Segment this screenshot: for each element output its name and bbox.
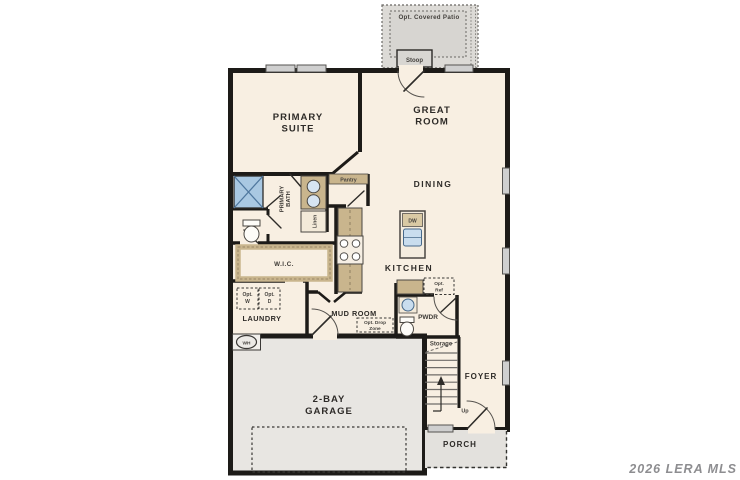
opt-washer-label: W [245, 299, 250, 305]
window [445, 65, 473, 72]
porch-label: PORCH [443, 440, 477, 449]
range-icon [337, 236, 363, 264]
primary-bath-label: BATH [286, 191, 292, 207]
window [503, 248, 510, 274]
burner [352, 240, 360, 248]
primary-suite-label: SUITE [282, 124, 315, 135]
burner [352, 253, 360, 261]
laundry-label: LAUNDRY [243, 314, 282, 323]
opt-drop-zone-label: Opt. Drop [364, 320, 386, 326]
linen-label: Linen [313, 215, 319, 228]
floor-plan-page: Opt. Covered Patio Stoop PORCH [0, 0, 740, 480]
up-label: Up [461, 409, 469, 415]
kitchen-label: KITCHEN [385, 263, 433, 273]
storage-label: Storage [430, 342, 453, 348]
toilet-icon [244, 226, 259, 242]
primary-suite-label: PRIMARY [273, 112, 323, 123]
stoop: Stoop [397, 50, 432, 67]
window [503, 168, 510, 194]
toilet-icon [401, 322, 414, 336]
burner [340, 253, 348, 261]
walk-in-closet: W.I.C. [238, 247, 330, 279]
opt-dryer-label: D [268, 299, 272, 305]
great-room-label: ROOM [415, 117, 449, 128]
mud-room-label: MUD ROOM [331, 309, 376, 318]
sink-icon [307, 195, 320, 208]
window [297, 65, 326, 72]
primary-bath-label: PRIMARY [280, 186, 286, 213]
pantry-label: Pantry [340, 178, 357, 184]
burner [340, 240, 348, 248]
great-room-label: GREAT [413, 105, 451, 116]
foyer-label: FOYER [465, 372, 498, 381]
opt-washer-label: Opt. [243, 292, 254, 298]
opt-ref-label: Opt. [434, 281, 444, 287]
wic-label: W.I.C. [274, 261, 294, 268]
sink-icon [402, 299, 414, 311]
opt-drop-zone-label: Zone [369, 326, 381, 332]
floor-plan-drawing: Opt. Covered Patio Stoop PORCH [0, 0, 740, 480]
window [428, 425, 453, 432]
pantry: Pantry [329, 174, 368, 184]
garage-label: 2-BAY [313, 394, 346, 405]
watermark-text: 2026 LERA MLS [628, 462, 737, 476]
toilet-icon [243, 220, 260, 226]
patio-label: Opt. Covered Patio [398, 14, 459, 21]
pwdr-label: PWDR [418, 314, 438, 321]
window [266, 65, 295, 72]
door-gap [399, 65, 423, 75]
door-gap [313, 331, 337, 340]
porch: PORCH [425, 430, 507, 468]
water-heater-label: WH [243, 341, 252, 347]
door-gap [468, 425, 495, 434]
watermark: 2026 LERA MLS 2026 LERA MLS [628, 462, 738, 477]
window [503, 361, 510, 385]
opt-dryer-label: Opt. [265, 292, 276, 298]
garage-label: GARAGE [305, 406, 353, 417]
opt-ref-label: Ref [435, 288, 443, 294]
stoop-label: Stoop [406, 58, 423, 64]
porch-floor [425, 430, 507, 468]
dishwasher-label: DW [408, 219, 417, 225]
kitchen-counter-lower [397, 280, 423, 294]
sink-icon [307, 180, 320, 193]
dining-label: DINING [414, 179, 453, 189]
